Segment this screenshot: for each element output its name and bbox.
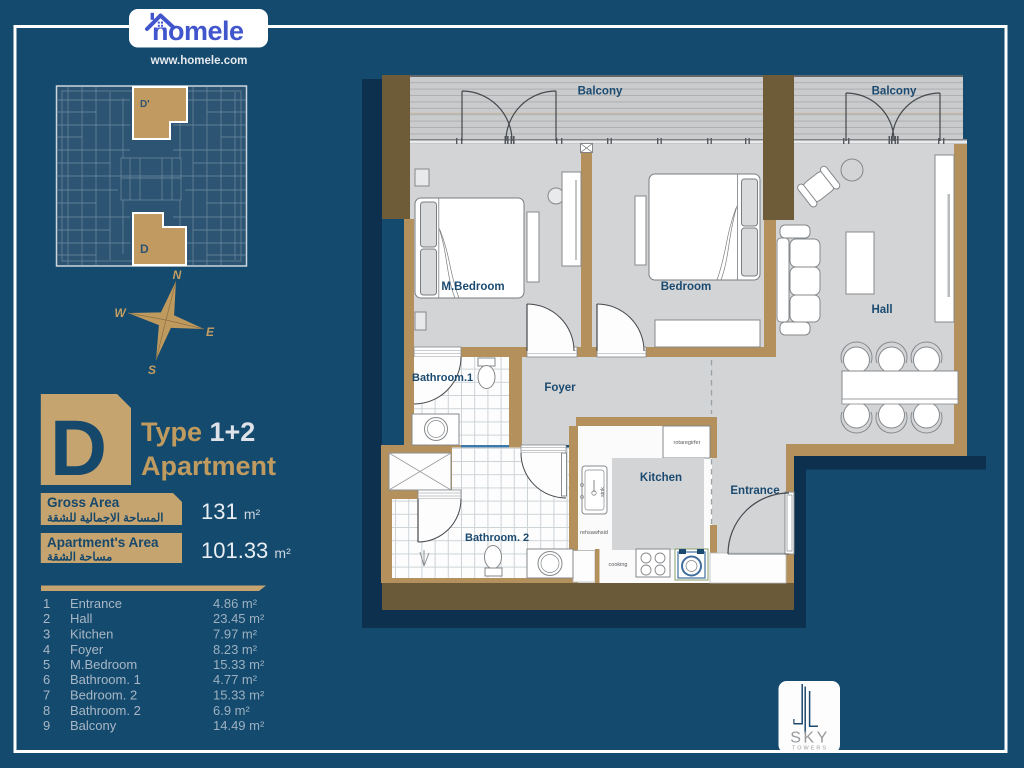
svg-text:D: D: [50, 403, 107, 492]
svg-text:6: 6: [43, 672, 50, 687]
svg-text:4.86 m²: 4.86 m²: [213, 596, 258, 611]
svg-text:4.77 m²: 4.77 m²: [213, 672, 258, 687]
svg-text:www.homele.com: www.homele.com: [150, 55, 248, 67]
svg-text:sink: sink: [600, 487, 606, 497]
svg-text:Balcony: Balcony: [70, 718, 117, 733]
svg-text:14.49 m²: 14.49 m²: [213, 718, 265, 733]
svg-text:E: E: [206, 325, 215, 339]
svg-text:Hall: Hall: [70, 611, 93, 626]
svg-text:2: 2: [43, 611, 50, 626]
svg-text:M.Bedroom: M.Bedroom: [441, 281, 504, 293]
svg-text:Bathroom. 2: Bathroom. 2: [465, 532, 529, 544]
svg-text:المساحة الاجمالية للشقة: المساحة الاجمالية للشقة: [47, 512, 163, 525]
svg-text:Kitchen: Kitchen: [70, 627, 113, 642]
svg-text:rotaregirfer: rotaregirfer: [674, 440, 701, 446]
svg-text:15.33 m²: 15.33 m²: [213, 688, 265, 703]
svg-text:S: S: [148, 363, 156, 377]
svg-text:23.45 m²: 23.45 m²: [213, 611, 265, 626]
svg-text:N: N: [173, 268, 182, 282]
svg-text:Balcony: Balcony: [578, 86, 623, 98]
svg-text:8.23 m²: 8.23 m²: [213, 642, 258, 657]
svg-text:Bedroom. 2: Bedroom. 2: [70, 688, 137, 703]
svg-text:Type 1+2: Type 1+2: [141, 417, 255, 447]
svg-text:W: W: [114, 306, 127, 320]
svg-text:مساحة الشقة: مساحة الشقة: [47, 551, 112, 564]
svg-text:Foyer: Foyer: [70, 642, 104, 657]
svg-text:D': D': [140, 99, 150, 110]
svg-text:8: 8: [43, 703, 50, 718]
svg-text:6.9 m²: 6.9 m²: [213, 703, 251, 718]
svg-text:5: 5: [43, 657, 50, 672]
svg-text:4: 4: [43, 642, 50, 657]
svg-text:D: D: [140, 242, 149, 256]
svg-text:rehsawhsid: rehsawhsid: [580, 530, 608, 536]
svg-text:M.Bedroom: M.Bedroom: [70, 657, 137, 672]
svg-text:7: 7: [43, 688, 50, 703]
svg-text:9: 9: [43, 718, 50, 733]
svg-text:Kitchen: Kitchen: [640, 472, 682, 484]
svg-text:Balcony: Balcony: [872, 86, 917, 98]
svg-text:Bathroom. 2: Bathroom. 2: [70, 703, 141, 718]
svg-text:7.97 m²: 7.97 m²: [213, 627, 258, 642]
svg-text:Apartment: Apartment: [141, 451, 276, 481]
svg-text:cooking: cooking: [609, 562, 628, 568]
svg-text:SKY: SKY: [790, 730, 830, 747]
svg-text:1: 1: [43, 596, 50, 611]
svg-text:3: 3: [43, 627, 50, 642]
svg-text:Bedroom: Bedroom: [661, 281, 711, 293]
svg-text:Entrance: Entrance: [70, 596, 122, 611]
svg-text:Bathroom.1: Bathroom.1: [412, 372, 473, 384]
svg-text:Foyer: Foyer: [544, 382, 576, 394]
svg-text:TOWERS: TOWERS: [792, 746, 828, 752]
svg-text:Apartment's Area: Apartment's Area: [47, 535, 159, 550]
svg-text:15.33 m²: 15.33 m²: [213, 657, 265, 672]
svg-text:Gross Area: Gross Area: [47, 495, 120, 510]
svg-text:Hall: Hall: [871, 304, 892, 316]
svg-text:Bathroom. 1: Bathroom. 1: [70, 672, 141, 687]
